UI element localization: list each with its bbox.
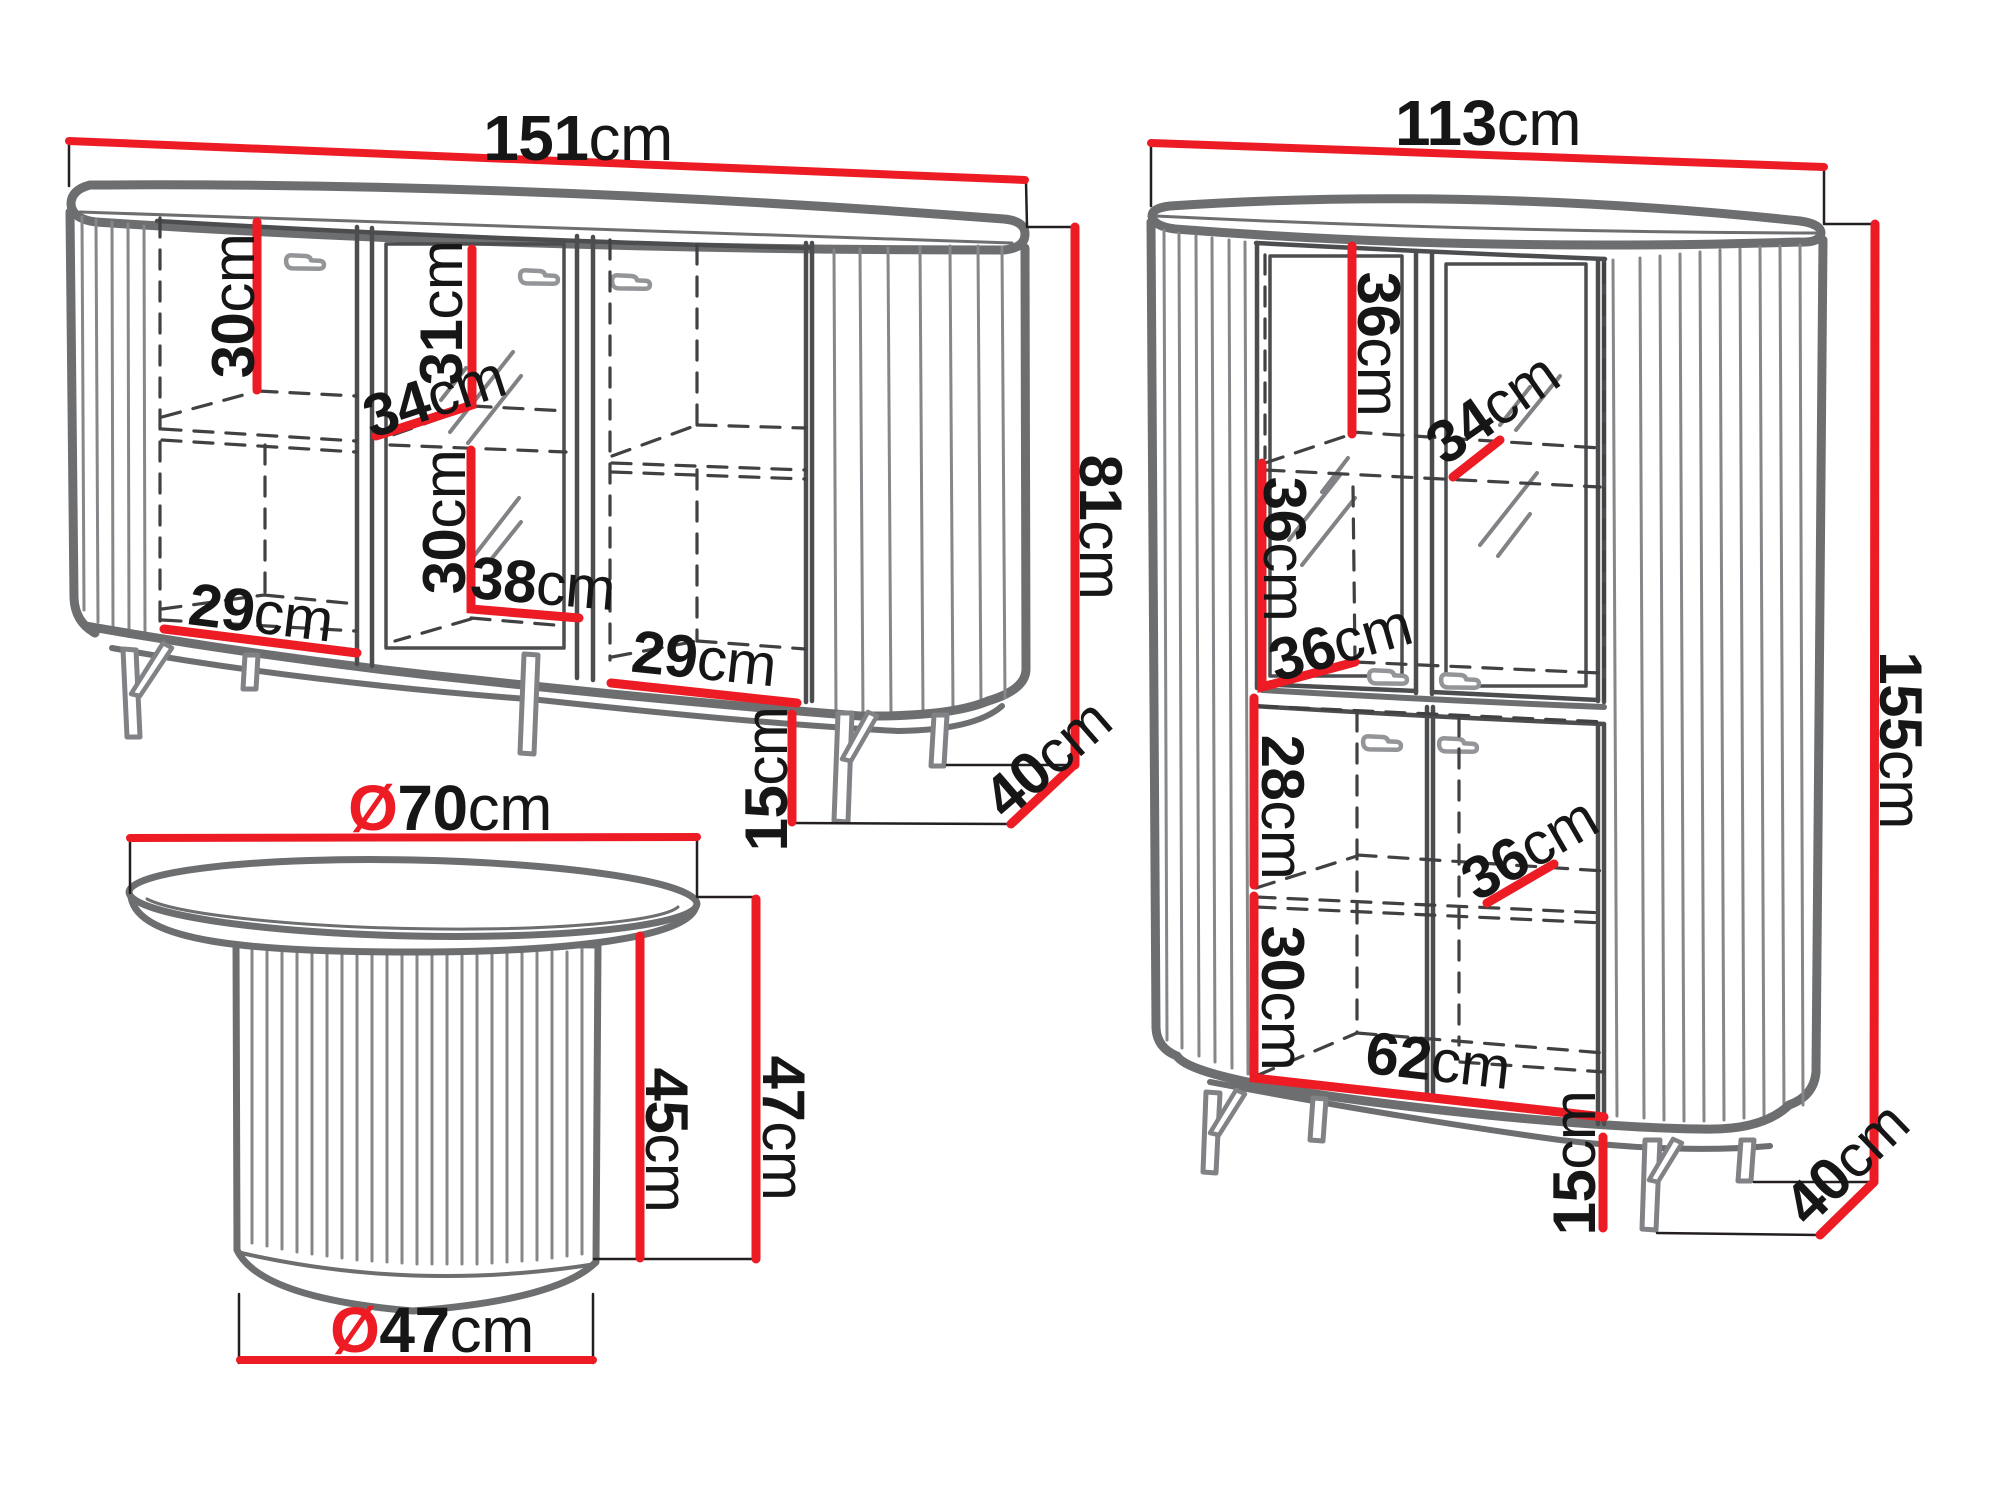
svg-text:45cm: 45cm	[633, 1068, 700, 1213]
svg-text:81cm: 81cm	[1067, 455, 1134, 600]
svg-text:30cm: 30cm	[200, 234, 267, 379]
svg-text:15cm: 15cm	[1541, 1091, 1608, 1236]
svg-text:113cm: 113cm	[1395, 87, 1581, 159]
svg-text:15cm: 15cm	[733, 707, 800, 852]
svg-text:36cm: 36cm	[1345, 272, 1412, 417]
svg-text:36cm: 36cm	[1450, 783, 1609, 913]
svg-text:30cm: 30cm	[411, 450, 478, 595]
svg-text:Ø70cm: Ø70cm	[348, 772, 552, 844]
svg-text:Ø47cm: Ø47cm	[330, 1294, 534, 1366]
svg-text:155cm: 155cm	[1867, 651, 1934, 829]
svg-text:36cm: 36cm	[1251, 477, 1318, 622]
svg-text:151cm: 151cm	[483, 102, 673, 174]
svg-text:40cm: 40cm	[971, 686, 1124, 832]
svg-text:47cm: 47cm	[750, 1056, 817, 1201]
svg-text:34cm: 34cm	[1414, 339, 1571, 477]
svg-text:30cm: 30cm	[1249, 926, 1316, 1071]
svg-text:38cm: 38cm	[468, 544, 618, 623]
svg-text:28cm: 28cm	[1249, 735, 1316, 880]
